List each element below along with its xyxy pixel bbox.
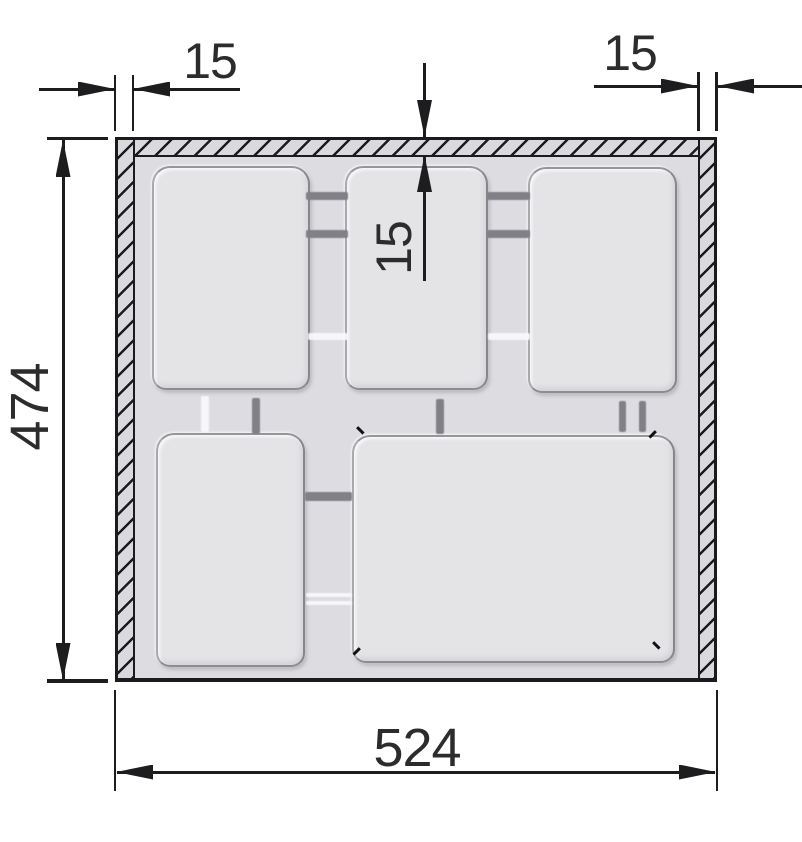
channel-highlight [306, 601, 352, 605]
channel-highlight [201, 396, 209, 432]
hatched-wall-top [133, 140, 700, 157]
compartment-top-right [528, 167, 677, 393]
extension-line [114, 75, 117, 131]
dimension-arrow [116, 765, 153, 780]
dimension-arrow [417, 100, 432, 137]
extension-line [697, 72, 700, 131]
dimension-line [62, 140, 65, 680]
divider-notch [305, 492, 352, 501]
dim-top-wall-thickness-label: 15 [344, 198, 444, 298]
dimension-arrow [56, 140, 71, 177]
extension-line [114, 690, 117, 791]
dimension-arrow [679, 765, 716, 780]
channel-highlight [306, 593, 352, 597]
channel-highlight [488, 333, 530, 340]
hatched-wall-left [118, 140, 135, 678]
dimension-arrow [78, 82, 115, 97]
divider-notch [487, 230, 530, 238]
dimension-arrow [56, 643, 71, 680]
channel-highlight [308, 333, 348, 340]
divider-notch [619, 401, 626, 432]
compartment-bottom-left [156, 433, 305, 667]
dim-overall-width-label: 524 [337, 721, 497, 775]
divider-notch [639, 401, 646, 432]
extension-line [715, 72, 718, 131]
compartment-top-left [152, 166, 310, 390]
divider-notch [252, 398, 260, 434]
dim-overall-height-label: 474 [0, 337, 60, 477]
divider-notch [306, 230, 348, 238]
extension-line [132, 75, 135, 131]
technical-drawing-canvas: 15 15 15 474 524 [0, 0, 802, 842]
hatched-wall-right [698, 140, 714, 678]
compartment-bottom-right [352, 435, 675, 663]
dim-left-wall-thickness-label: 15 [160, 36, 260, 86]
extension-line [716, 690, 719, 791]
extension-tick [47, 137, 108, 141]
dimension-arrow [661, 79, 698, 94]
divider-notch [436, 399, 444, 434]
divider-notch [487, 192, 530, 200]
divider-notch [306, 192, 348, 200]
extension-tick [47, 679, 108, 683]
dim-right-wall-thickness-label: 15 [580, 28, 680, 78]
dimension-arrow [717, 79, 754, 94]
